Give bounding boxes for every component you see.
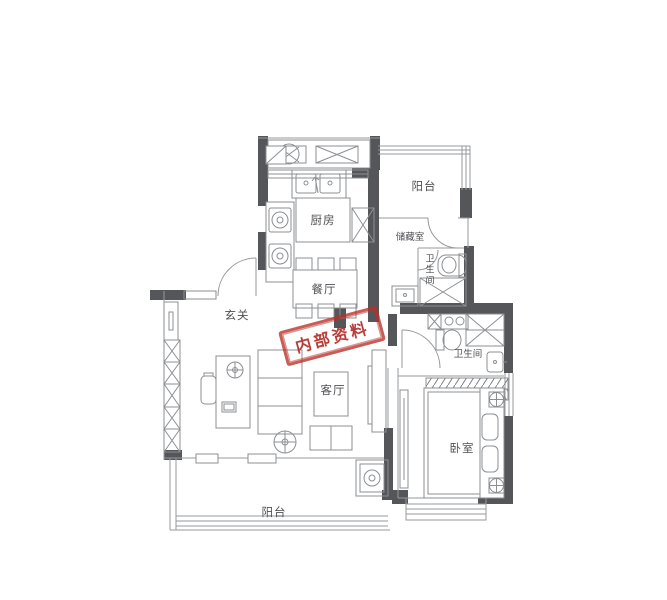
tv-icon (368, 366, 372, 424)
nightstand-lamp-icon (489, 478, 504, 493)
ottoman (310, 426, 352, 450)
room-label-storage: 储藏室 (396, 229, 425, 243)
toilet-icon (438, 254, 466, 277)
desk-chair (201, 373, 216, 404)
suite-door-arc (402, 330, 440, 368)
corner-shelf-icon (266, 146, 286, 164)
storage-door-arc (428, 218, 458, 248)
room-label-balcony-south: 阳台 (262, 504, 287, 520)
entry-door-arc (218, 258, 256, 296)
room-label-bath-right: 卫生间 (454, 346, 483, 360)
room-label-balcony-north: 阳台 (412, 178, 437, 194)
room-label-kitchen: 厨房 (311, 212, 336, 228)
nightstand-lamp-icon (489, 392, 504, 407)
storage-cabinet (164, 340, 180, 452)
stove-icon (266, 202, 294, 282)
desk (216, 356, 250, 428)
vanity-icon (428, 314, 468, 329)
corner-shower-icon (466, 314, 504, 346)
room-label-bedroom: 卧室 (450, 440, 475, 456)
tv-panel (400, 390, 408, 488)
shoe-cabinet (164, 302, 178, 340)
kitchen-fixtures (266, 140, 374, 282)
room-label-bath-top: 卫生间 (424, 254, 437, 287)
bedroom-furniture (400, 378, 508, 498)
side-table-icon (274, 431, 296, 453)
floor-plan-drawing (0, 0, 667, 600)
floor-plan: 阳台 厨房 储藏室 卫生间 餐厅 玄关 卫生间 客厅 卧室 阳台 内部资料 (0, 0, 667, 600)
room-label-entry: 玄关 (225, 307, 250, 323)
tv-cabinet (368, 350, 386, 432)
room-label-living: 客厅 (321, 382, 346, 398)
room-label-dining: 餐厅 (312, 281, 337, 297)
